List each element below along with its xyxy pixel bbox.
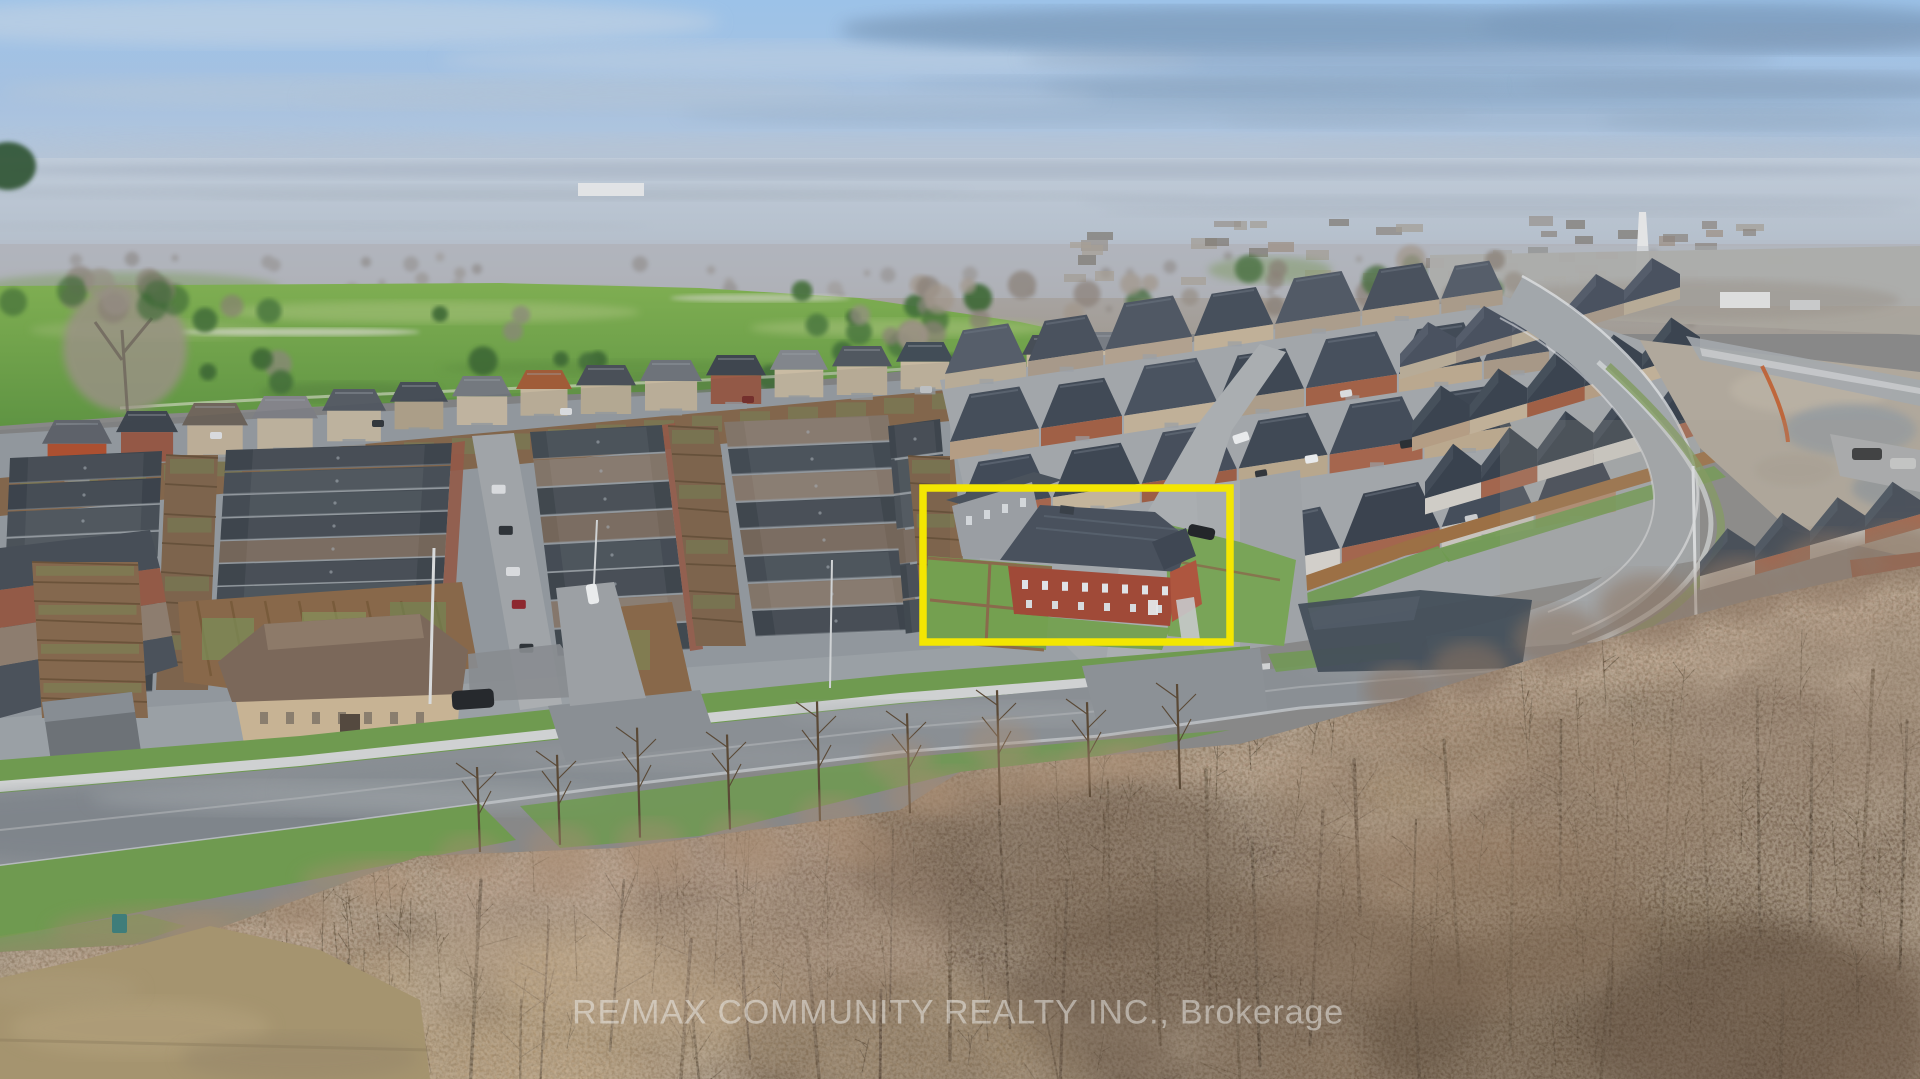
- svg-text:RE/MAX COMMUNITY REALTY INC.,: RE/MAX COMMUNITY REALTY INC., Brokerage: [572, 994, 1344, 1032]
